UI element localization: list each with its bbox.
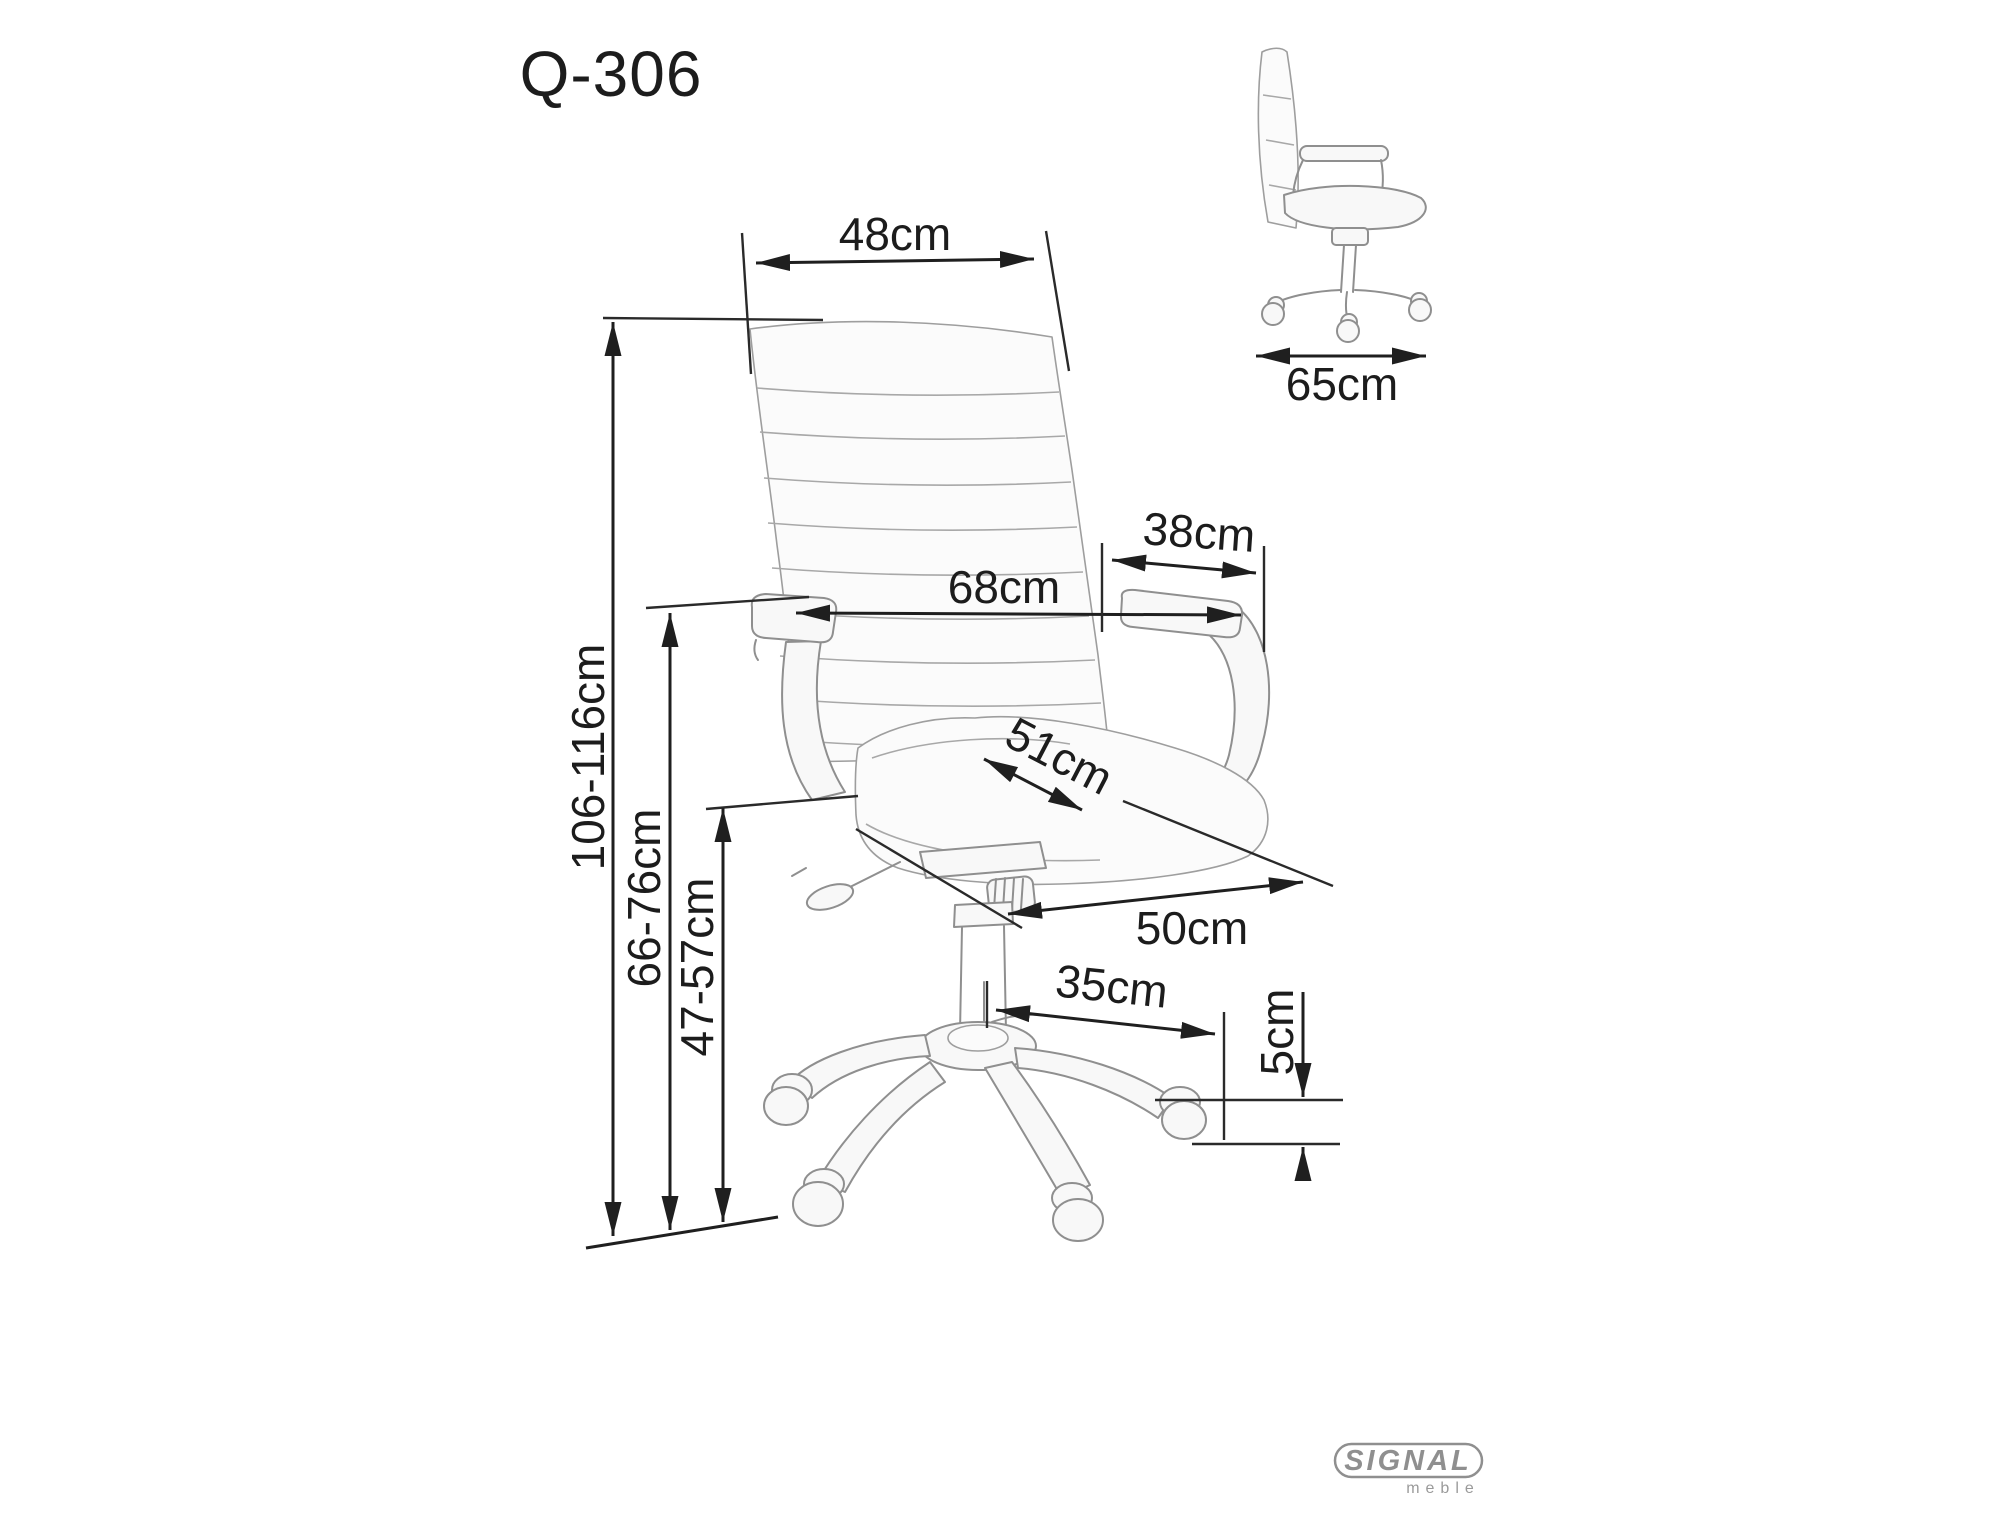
logo-brand-text: SIGNAL xyxy=(1344,1445,1472,1477)
side-mechanism xyxy=(1332,228,1368,245)
technical-drawing-page: 48cm 106-116cm 66-76cm 47-57cm 68cm xyxy=(0,0,2000,1530)
side-view-drawing xyxy=(1258,48,1431,342)
dim-seat-height: 47-57cm xyxy=(671,796,858,1222)
seat-width-label: 50cm xyxy=(1136,902,1248,954)
logo-subtitle-text: meble xyxy=(1406,1480,1480,1497)
floor-line xyxy=(586,1217,778,1248)
dim-overall-depth: 65cm xyxy=(1256,356,1426,410)
brand-logo: SIGNAL meble xyxy=(1335,1444,1482,1497)
side-gas-lift xyxy=(1341,245,1356,292)
total-height-label: 106-116cm xyxy=(562,644,614,871)
dim-caster-height: 5cm xyxy=(1155,989,1343,1176)
overall-width-label: 68cm xyxy=(948,561,1060,613)
backrest-width-label: 48cm xyxy=(839,208,951,260)
left-armrest-pad xyxy=(752,594,836,642)
armrest-height-label: 66-76cm xyxy=(618,809,670,988)
armrest-depth-label: 38cm xyxy=(1141,502,1257,562)
side-base xyxy=(1262,290,1431,342)
base-span-label: 35cm xyxy=(1053,954,1170,1017)
overall-depth-label: 65cm xyxy=(1286,358,1398,410)
side-seat xyxy=(1284,186,1426,229)
tilt-lever xyxy=(792,862,900,915)
main-chair-drawing xyxy=(750,322,1269,1241)
seat-height-label: 47-57cm xyxy=(671,878,723,1057)
gas-lift-column xyxy=(954,902,1013,1032)
caster-height-label: 5cm xyxy=(1251,989,1303,1076)
base-star xyxy=(790,1015,1172,1198)
dimension-diagram: 48cm 106-116cm 66-76cm 47-57cm 68cm xyxy=(0,0,2000,1530)
model-title: Q-306 xyxy=(520,38,703,110)
